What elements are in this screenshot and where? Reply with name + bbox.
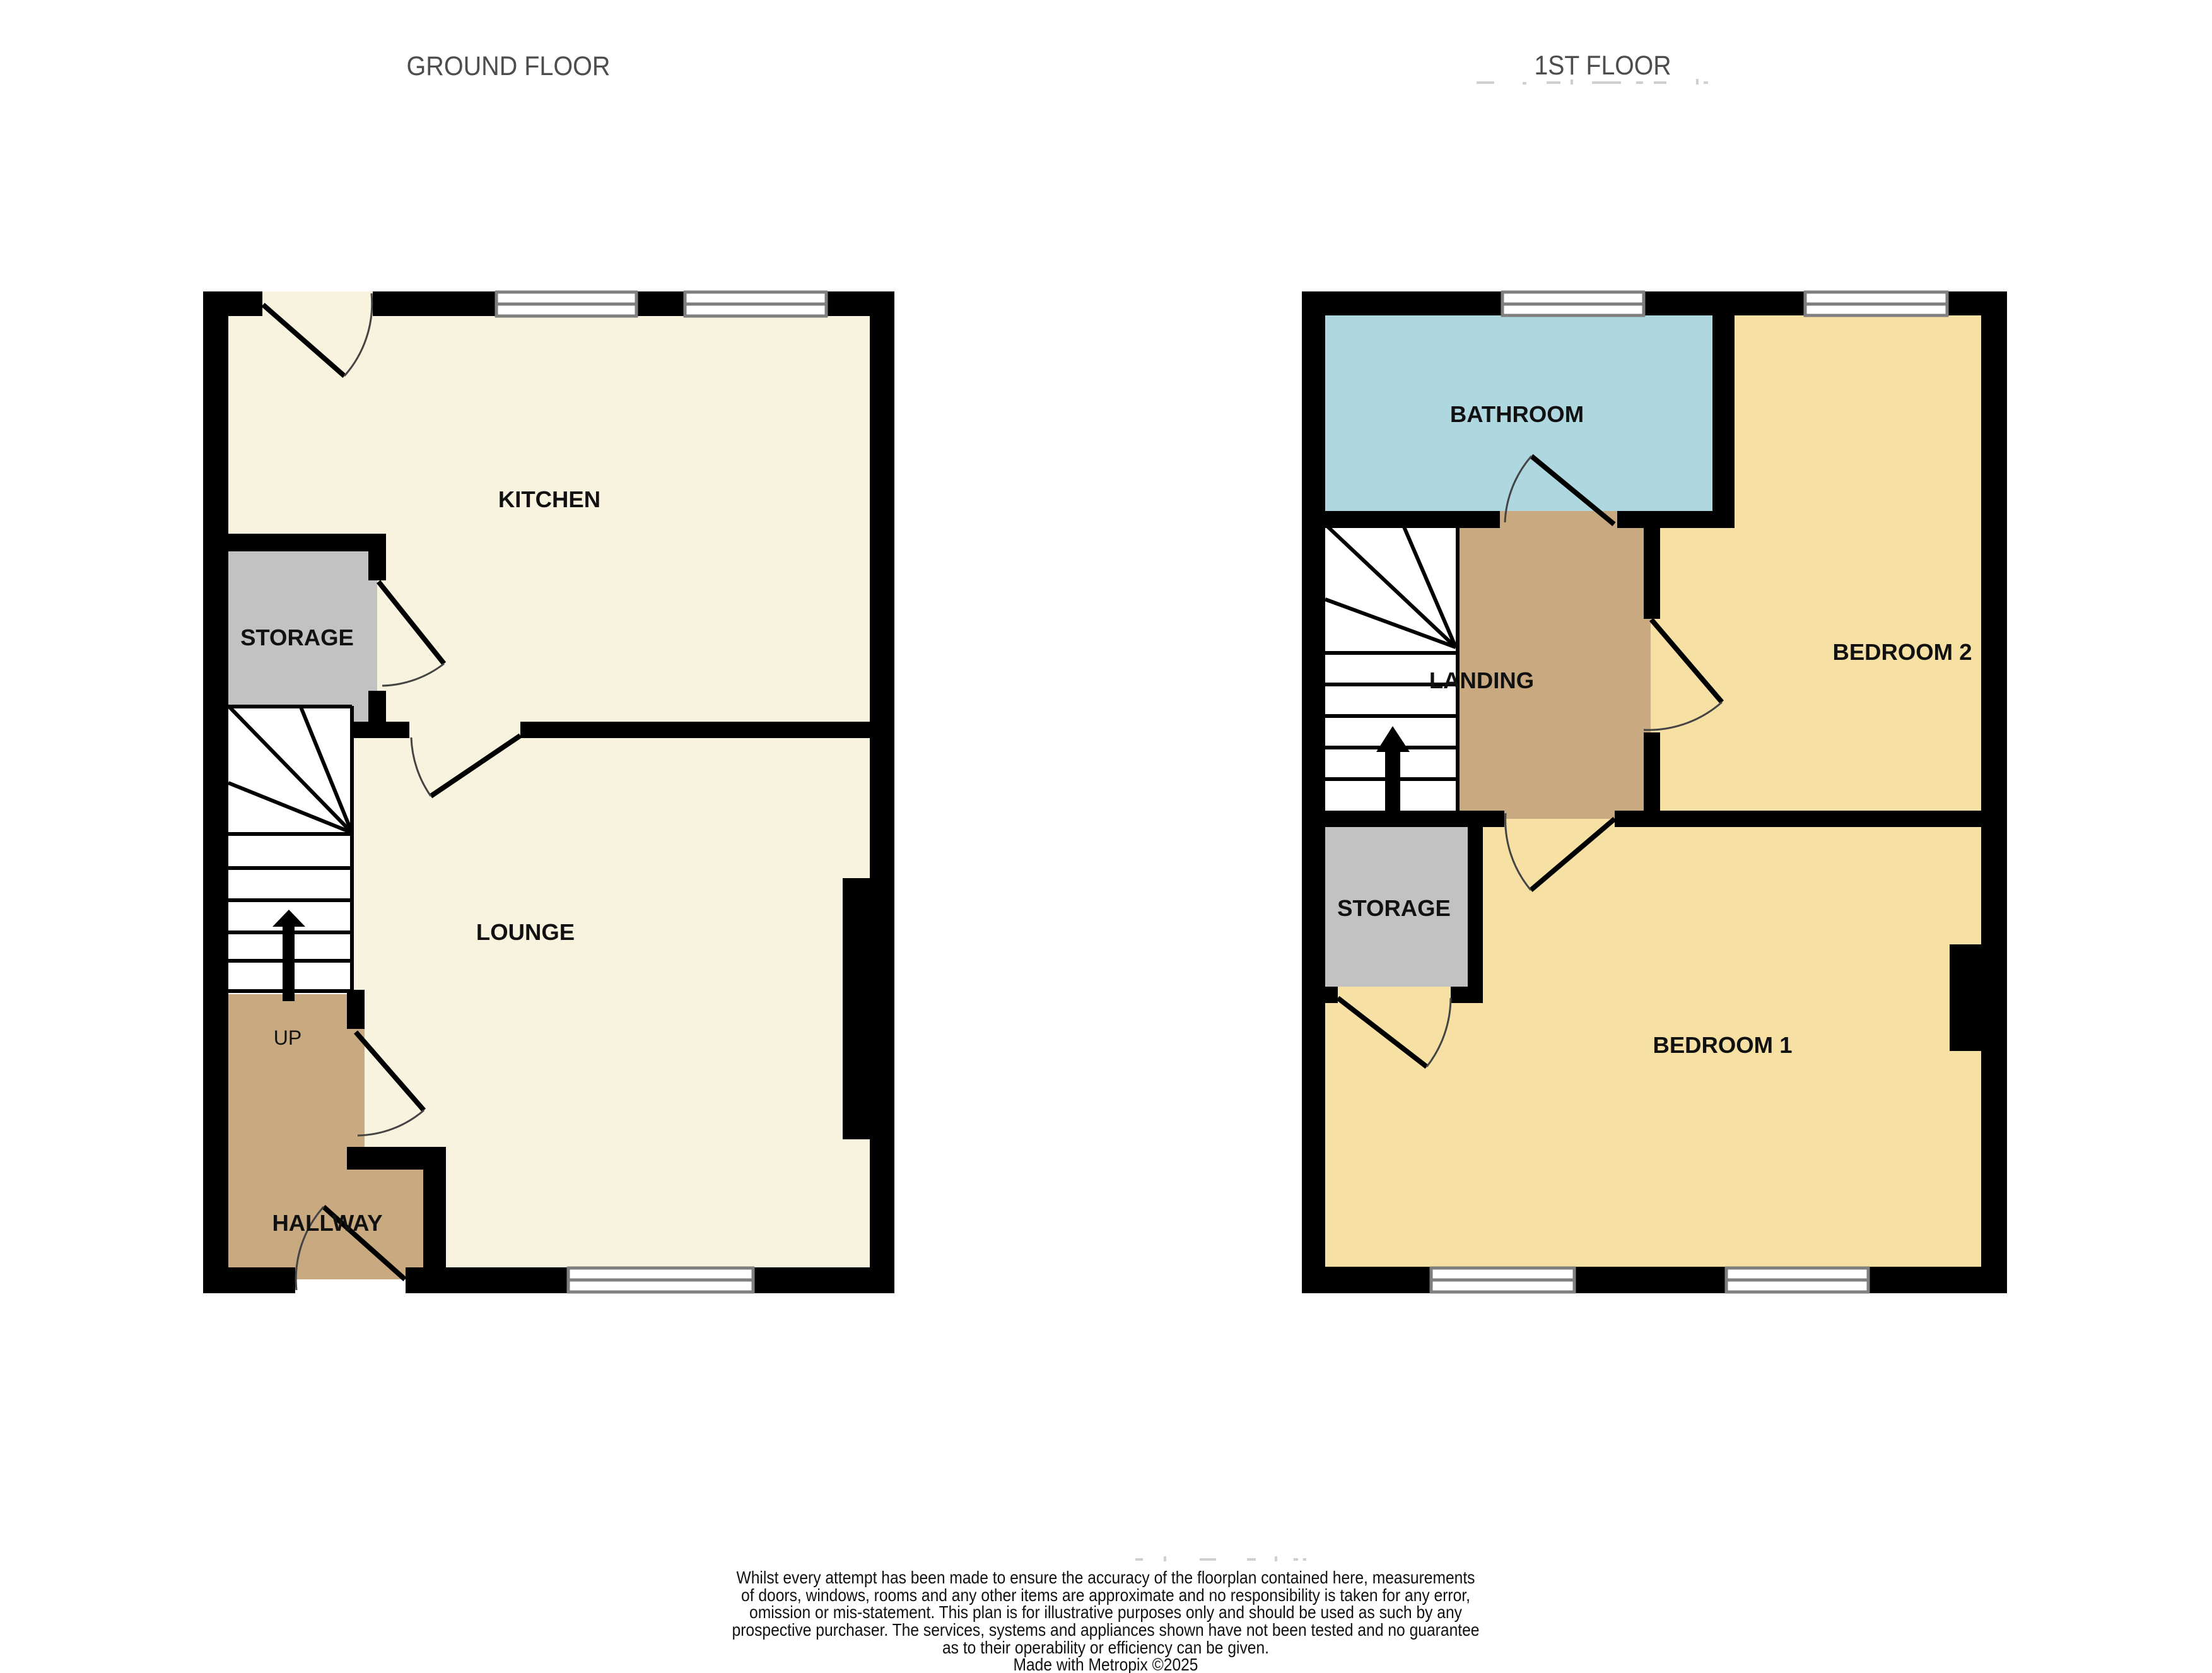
svg-text:KITCHEN: KITCHEN [498, 486, 600, 512]
svg-text:Made with Metropix ©2025: Made with Metropix ©2025 [1014, 1655, 1198, 1673]
svg-text:1ST FLOOR: 1ST FLOOR [1535, 50, 1671, 81]
svg-text:LOUNGE: LOUNGE [476, 919, 575, 945]
svg-text:BEDROOM 1: BEDROOM 1 [1653, 1032, 1792, 1058]
svg-text:UP: UP [274, 1026, 301, 1049]
svg-text:STORAGE: STORAGE [1337, 895, 1451, 921]
svg-text:BATHROOM: BATHROOM [1450, 401, 1584, 427]
svg-text:prospective purchaser. The ser: prospective purchaser. The services, sys… [732, 1620, 1480, 1640]
svg-text:GROUND FLOOR: GROUND FLOOR [407, 51, 611, 81]
svg-text:omission or mis-statement. Thi: omission or mis-statement. This plan is … [749, 1602, 1462, 1622]
svg-text:Whilst every attempt has been: Whilst every attempt has been made to en… [737, 1568, 1475, 1587]
svg-text:BEDROOM 2: BEDROOM 2 [1832, 639, 1972, 665]
svg-text:HALLWAY: HALLWAY [272, 1210, 382, 1236]
svg-text:STORAGE: STORAGE [240, 625, 354, 650]
svg-text:LANDING: LANDING [1429, 667, 1534, 693]
